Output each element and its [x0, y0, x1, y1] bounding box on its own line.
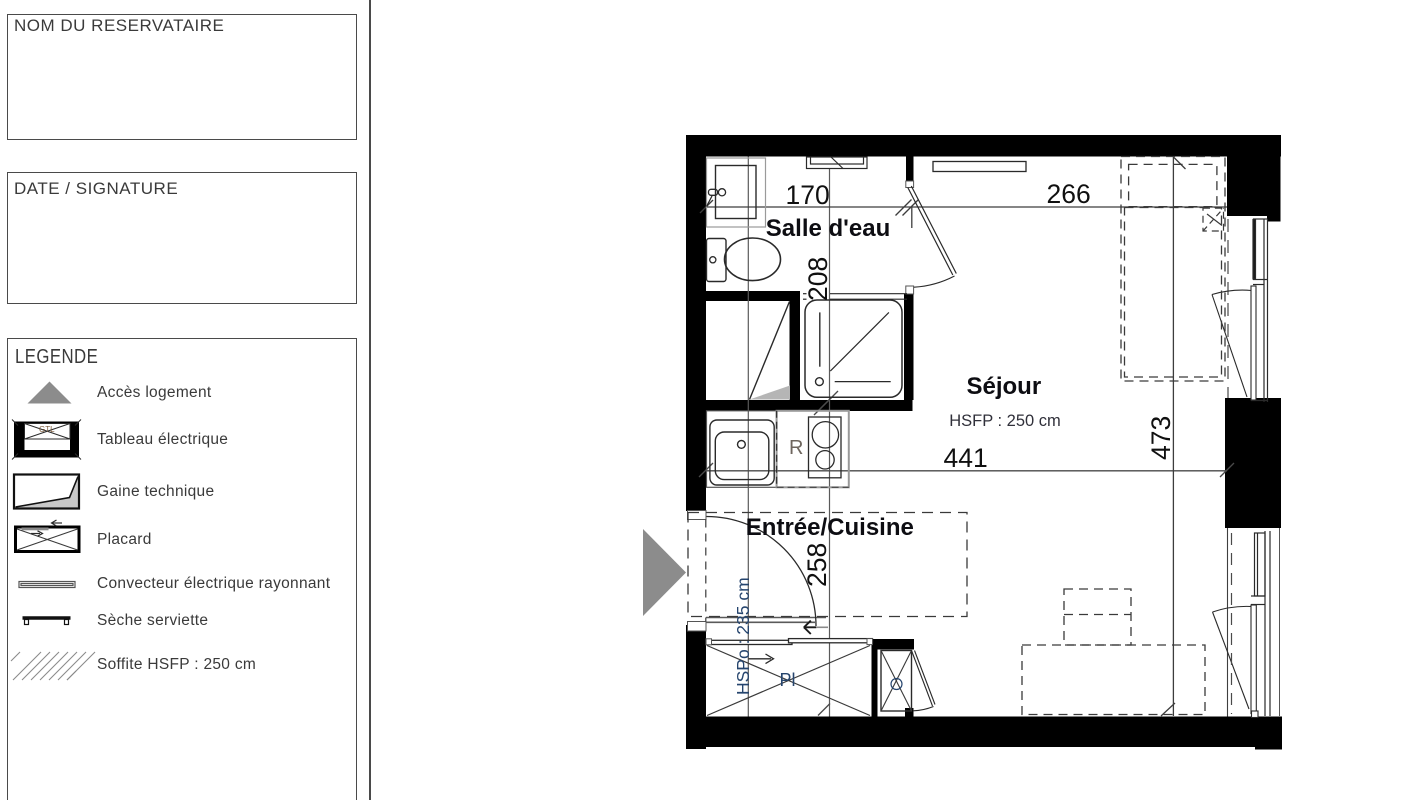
svg-text:GTL: GTL — [39, 425, 55, 434]
